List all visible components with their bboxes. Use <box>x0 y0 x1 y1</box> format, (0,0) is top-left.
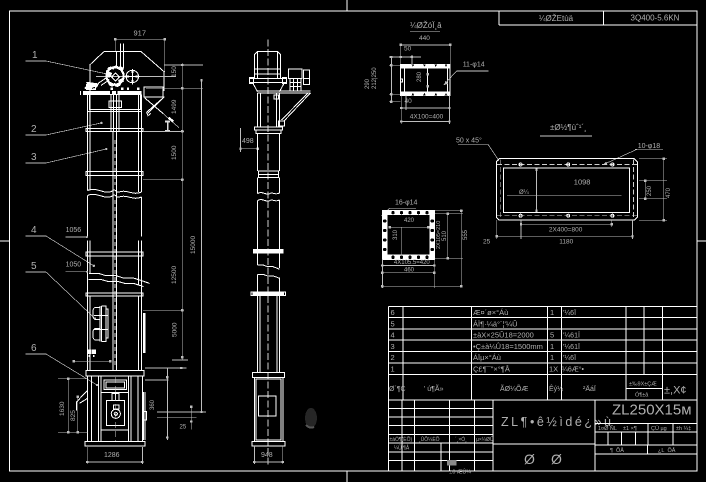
svg-text:11-φ14: 11-φ14 <box>463 62 485 69</box>
svg-text:825: 825 <box>70 410 77 421</box>
svg-text:5000: 5000 <box>172 322 179 337</box>
svg-text:ÃØ¼ÕÆ: ÃØ¼ÕÆ <box>500 384 528 393</box>
svg-text:¼ØŽóÏ¸â: ¼ØŽóÏ¸â <box>410 21 442 30</box>
svg-text:12500: 12500 <box>171 266 178 284</box>
svg-text:1050: 1050 <box>66 262 82 269</box>
svg-text:6: 6 <box>31 343 37 354</box>
svg-text:360: 360 <box>150 399 156 410</box>
svg-text:498: 498 <box>242 138 254 145</box>
svg-text:Ø: Ø <box>551 451 562 467</box>
svg-text:±‰9X±ÇÆ: ±‰9X±ÇÆ <box>629 382 657 388</box>
svg-text:¼6Æ°•: ¼6Æ°• <box>562 365 585 373</box>
svg-text:¼Û ¶Å: ¼Û ¶Å <box>394 444 410 451</box>
svg-text:16-φ14: 16-φ14 <box>395 200 418 207</box>
svg-text:¸ÛÕ¼­ÈÕ: ¸ÛÕ¼­ÈÕ <box>419 436 440 443</box>
svg-text:212|250: 212|250 <box>372 67 378 89</box>
svg-text:ÇÜ µg: ÇÜ µg <box>651 425 667 432</box>
svg-text:µ×¼ØÛ: µ×¼ØÛ <box>476 436 494 443</box>
svg-text:1286: 1286 <box>104 452 120 459</box>
svg-text:1¤Ø ÑL: 1¤Ø ÑL <box>598 425 617 432</box>
svg-text:1500: 1500 <box>171 145 178 160</box>
svg-text:917: 917 <box>134 29 147 38</box>
svg-text:4: 4 <box>391 331 395 340</box>
svg-text:¶ ÕÅ: ¶ ÕÅ <box>610 447 624 454</box>
svg-text:1098: 1098 <box>574 178 591 187</box>
svg-text:40: 40 <box>405 98 413 105</box>
svg-text:250: 250 <box>647 185 653 196</box>
svg-text:6: 6 <box>391 308 395 317</box>
svg-text:±,X¢: ±,X¢ <box>664 385 687 397</box>
svg-text:'¼61Ï: '¼61Ï <box>563 332 580 340</box>
svg-text:¼ØŽEtùä: ¼ØŽEtùä <box>539 14 574 23</box>
svg-text:948: 948 <box>261 452 273 459</box>
svg-text:¿L ÕÅ: ¿L ÕÅ <box>658 447 676 454</box>
svg-text:±àX×25Û18=2000: ±àX×25Û18=2000 <box>473 331 534 340</box>
svg-text:310: 310 <box>393 229 399 240</box>
svg-text:•Ç±à¼Û18=1500mm: •Ç±à¼Û18=1500mm <box>473 342 543 351</box>
svg-text:290: 290 <box>365 78 371 89</box>
svg-text:555: 555 <box>463 229 469 240</box>
svg-text:Êý¼: Êý¼ <box>549 384 563 393</box>
svg-text:420: 420 <box>404 218 415 224</box>
svg-text:1: 1 <box>550 342 554 351</box>
svg-text:50: 50 <box>404 46 412 53</box>
svg-text:25: 25 <box>483 239 491 246</box>
svg-text:²ÄáÏ: ²ÄáÏ <box>583 385 596 393</box>
svg-text:1: 1 <box>391 364 395 373</box>
svg-text:±àÖ¶(ÈÕ): ±àÖ¶(ÈÕ) <box>390 436 413 443</box>
svg-text:1: 1 <box>32 50 38 61</box>
svg-text:1: 1 <box>550 308 554 317</box>
svg-text:´¸×Ó¸: ´¸×Ó¸ <box>455 436 467 443</box>
svg-text:±h ¼‡: ±h ¼‡ <box>676 426 691 432</box>
svg-text:3: 3 <box>391 342 395 351</box>
svg-text:50 x 45°: 50 x 45° <box>456 137 482 145</box>
svg-text:Ø¼: Ø¼ <box>519 190 530 196</box>
svg-text:ÁÏ¶·¼ä°´¦'¼Û: ÁÏ¶·¼ä°´¦'¼Û <box>473 319 518 328</box>
svg-text:460: 460 <box>404 268 415 274</box>
svg-text:440: 440 <box>419 35 430 42</box>
svg-text:3Q400-5.6KN: 3Q400-5.6KN <box>631 14 680 23</box>
svg-text:25: 25 <box>180 425 187 431</box>
svg-text:'¼61Ï: '¼61Ï <box>563 343 580 351</box>
svg-text:2: 2 <box>31 124 37 135</box>
svg-text:±1 ×¶: ±1 ×¶ <box>623 426 637 432</box>
svg-text:ÁÏµ×°Áù: ÁÏµ×°Áù <box>473 353 501 362</box>
svg-text:1499: 1499 <box>171 99 178 114</box>
svg-text:470: 470 <box>666 187 672 198</box>
svg-text:Ø: Ø <box>524 451 535 467</box>
svg-text:5: 5 <box>31 261 37 272</box>
svg-text:1630: 1630 <box>59 401 66 416</box>
svg-text:2: 2 <box>391 353 395 362</box>
svg-text:1X: 1X <box>549 364 558 373</box>
svg-text:5: 5 <box>391 319 395 328</box>
svg-text:5: 5 <box>550 331 554 340</box>
svg-text:±Ø½¶ùˆ¹´¸: ±Ø½¶ùˆ¹´¸ <box>550 123 587 132</box>
svg-text:510: 510 <box>442 230 448 241</box>
svg-text:1180: 1180 <box>559 239 573 246</box>
svg-text:ZL250X15м: ZL250X15м <box>612 402 692 419</box>
svg-text:' ú¶Ã»: ' ú¶Ã» <box>424 384 444 393</box>
svg-text:15000: 15000 <box>190 236 197 254</box>
svg-text:Ç£¶¯"×°¶Å: Ç£¶¯"×°¶Å <box>473 364 510 373</box>
svg-text:4X105.5=420: 4X105.5=420 <box>394 260 431 266</box>
svg-text:3: 3 <box>31 152 37 163</box>
svg-text:±0 ÆÛ¼: ±0 ÆÛ¼ <box>449 468 471 475</box>
svg-text:Æ¤´ø×°Áù: Æ¤´ø×°Áù <box>473 308 508 317</box>
svg-text:1: 1 <box>550 353 554 362</box>
svg-text:150: 150 <box>171 66 178 77</box>
svg-text:4X100=400: 4X100=400 <box>410 114 444 121</box>
svg-text:Ø´¶Ç: Ø´¶Ç <box>389 386 406 393</box>
svg-text:4: 4 <box>31 225 37 236</box>
svg-text:'¼6Ï: '¼6Ï <box>563 354 576 362</box>
svg-text:'¼6Ï: '¼6Ï <box>563 309 576 317</box>
svg-text:2X400=800: 2X400=800 <box>549 227 583 234</box>
svg-text:1056: 1056 <box>66 227 82 234</box>
svg-text:Ó¶±â: Ó¶±â <box>635 392 649 399</box>
svg-text:280: 280 <box>417 71 423 82</box>
